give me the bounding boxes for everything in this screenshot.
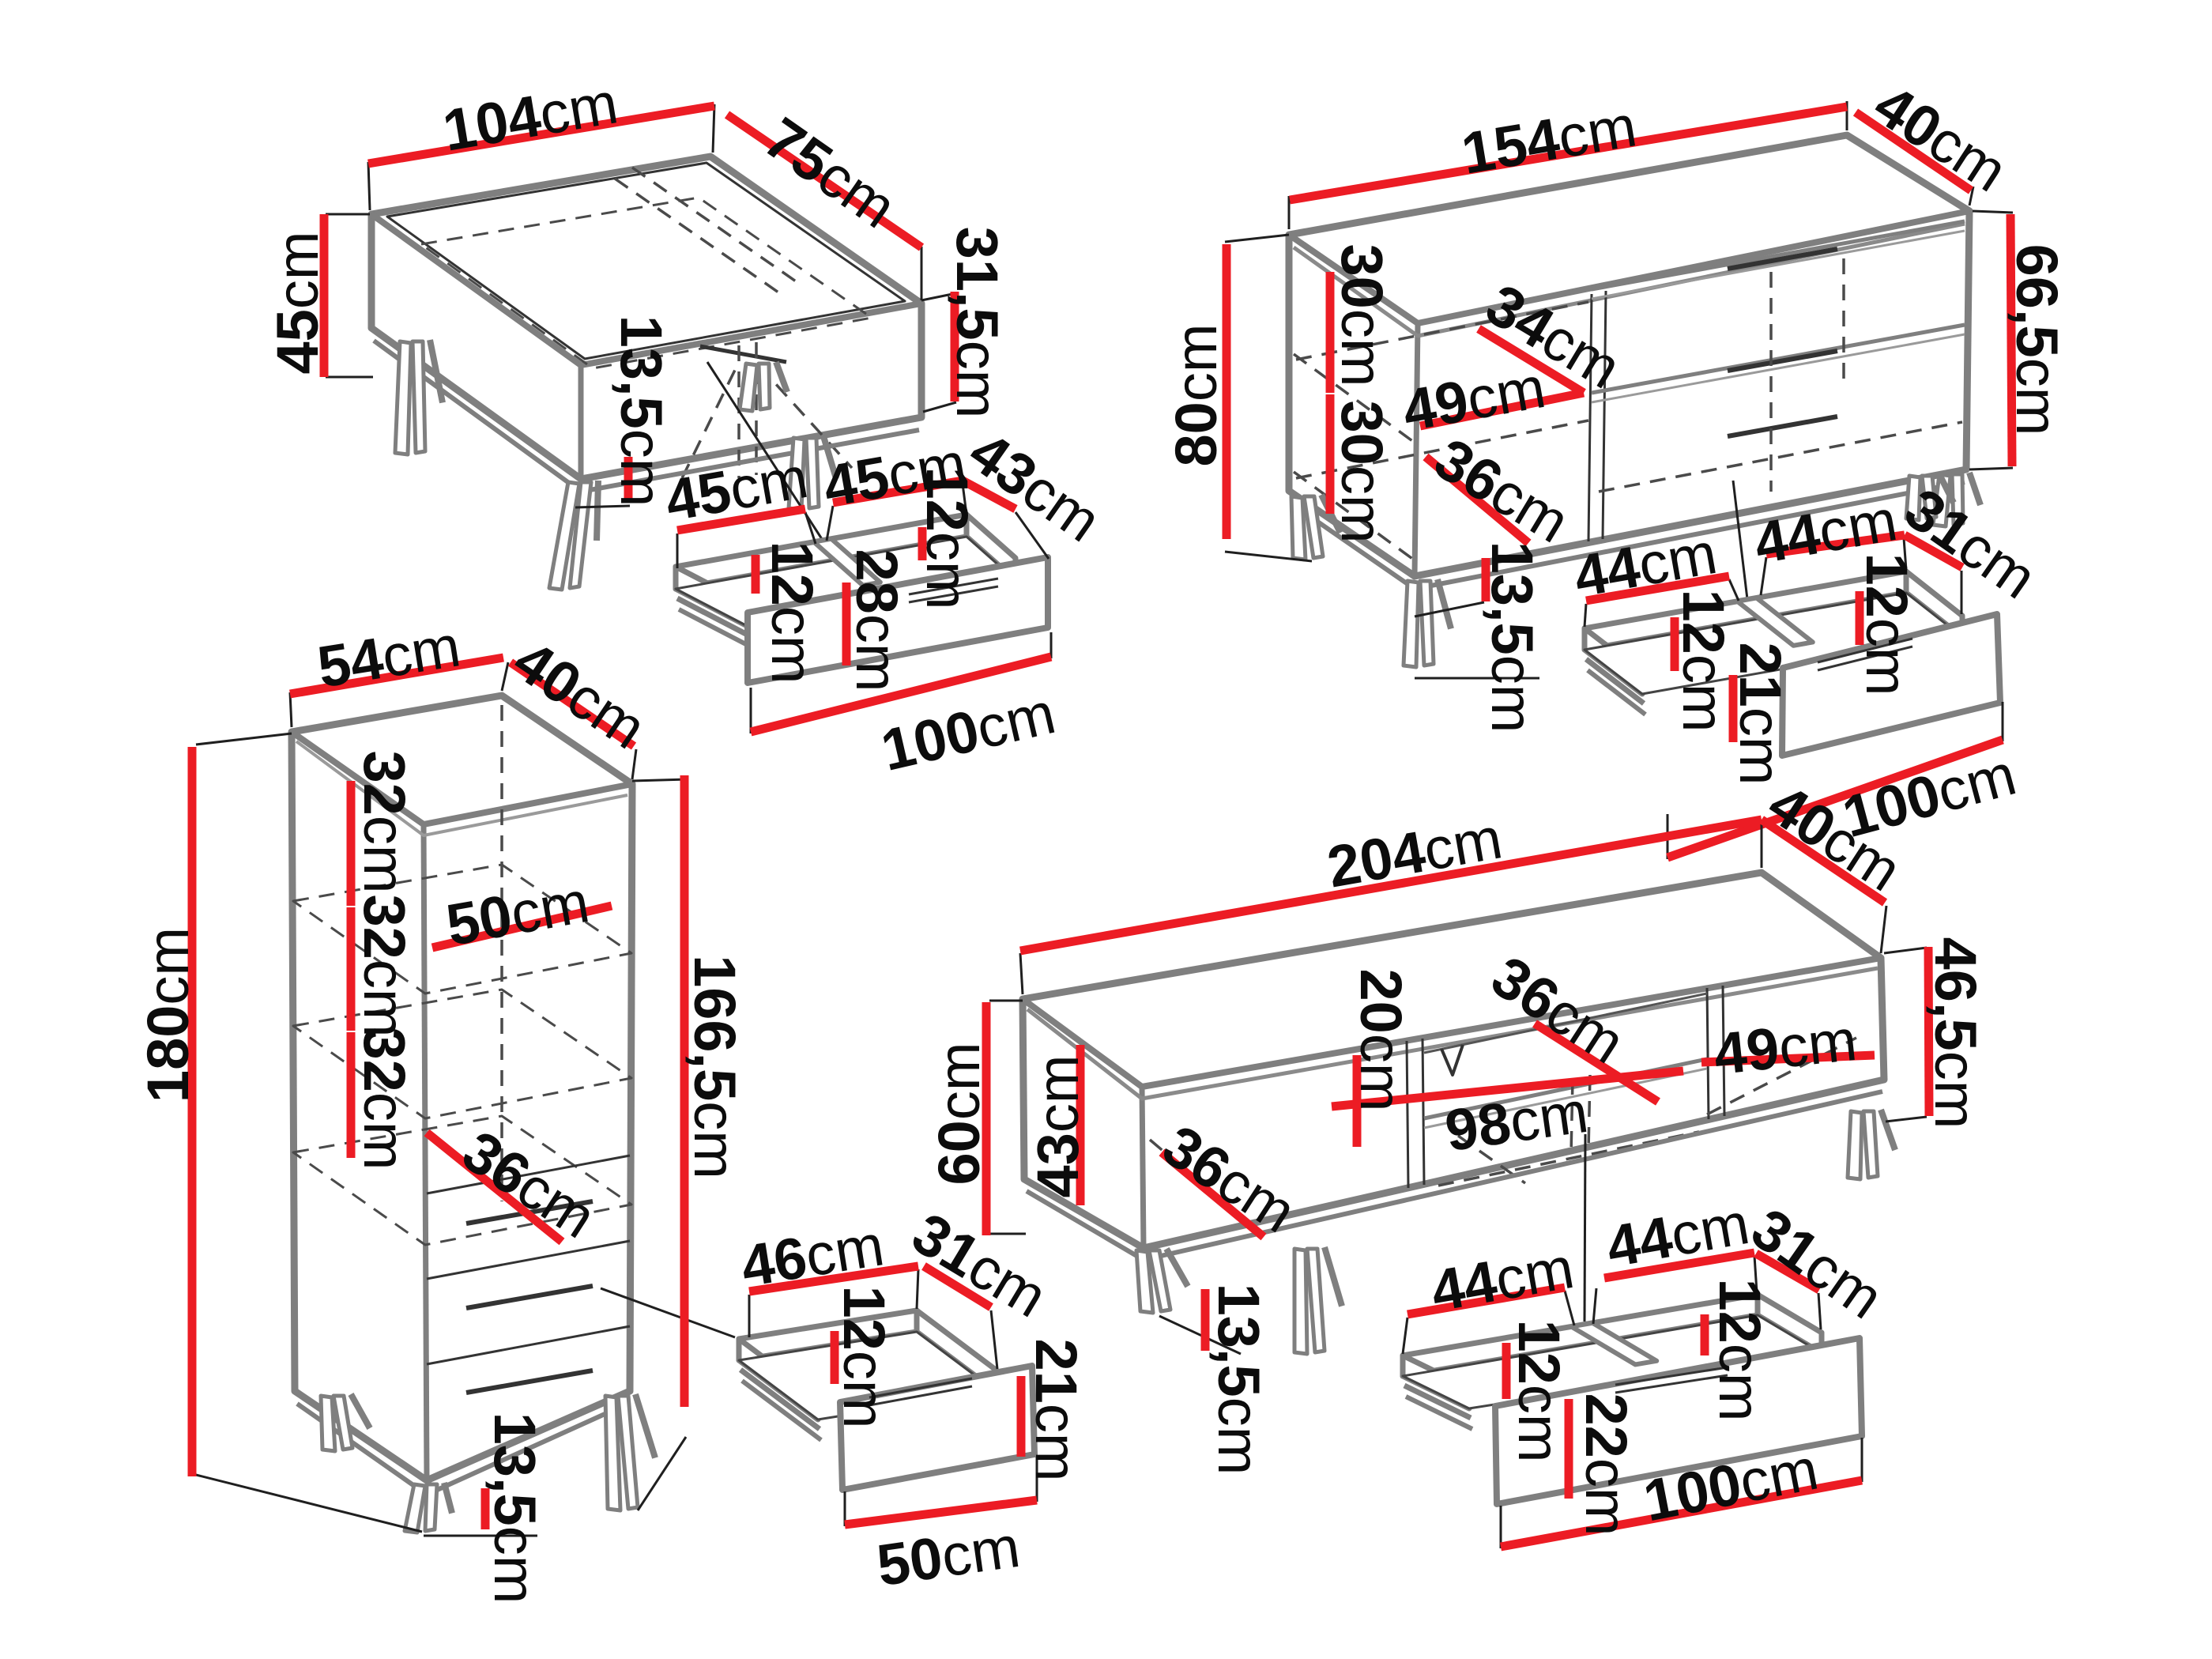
svg-text:30cm: 30cm (1330, 244, 1396, 387)
svg-text:46,5cm: 46,5cm (1924, 937, 1989, 1129)
svg-text:80cm: 80cm (1163, 324, 1229, 467)
svg-text:44cm: 44cm (1426, 1234, 1579, 1323)
svg-text:12cm: 12cm (1708, 1279, 1773, 1422)
svg-text:180cm: 180cm (135, 927, 201, 1103)
svg-text:50cm: 50cm (873, 1513, 1024, 1597)
svg-text:45cm: 45cm (265, 232, 330, 375)
svg-text:66,5cm: 66,5cm (2005, 244, 2071, 436)
svg-text:44cm: 44cm (1602, 1190, 1754, 1279)
svg-text:21cm: 21cm (1728, 643, 1794, 786)
svg-text:12cm: 12cm (760, 541, 826, 684)
svg-text:21cm: 21cm (1024, 1339, 1090, 1482)
svg-text:31,5cm: 31,5cm (945, 227, 1011, 419)
svg-text:43cm: 43cm (1025, 1055, 1091, 1198)
svg-text:12cm: 12cm (915, 467, 981, 610)
svg-text:13,5cm: 13,5cm (1480, 541, 1546, 733)
svg-text:28cm: 28cm (845, 549, 910, 692)
svg-text:154cm: 154cm (1457, 92, 1641, 187)
svg-text:12cm: 12cm (1671, 590, 1737, 733)
svg-text:13,5cm: 13,5cm (1207, 1284, 1272, 1476)
svg-text:30cm: 30cm (1330, 401, 1396, 544)
svg-text:13,5cm: 13,5cm (483, 1412, 548, 1604)
svg-text:204cm: 204cm (1322, 805, 1506, 899)
svg-text:22cm: 22cm (1574, 1393, 1640, 1536)
svg-text:32cm: 32cm (352, 895, 418, 1038)
svg-text:31cm: 31cm (902, 1200, 1058, 1329)
svg-text:20cm: 20cm (1349, 969, 1415, 1112)
svg-text:12cm: 12cm (832, 1286, 898, 1429)
svg-text:166,5cm: 166,5cm (683, 955, 748, 1179)
svg-text:32cm: 32cm (352, 1027, 418, 1171)
svg-text:12cm: 12cm (1855, 553, 1920, 696)
svg-text:32cm: 32cm (352, 751, 418, 894)
svg-text:12cm: 12cm (1507, 1320, 1573, 1463)
svg-text:54cm: 54cm (313, 613, 465, 699)
svg-text:104cm: 104cm (439, 70, 623, 164)
svg-text:60cm: 60cm (926, 1043, 992, 1186)
